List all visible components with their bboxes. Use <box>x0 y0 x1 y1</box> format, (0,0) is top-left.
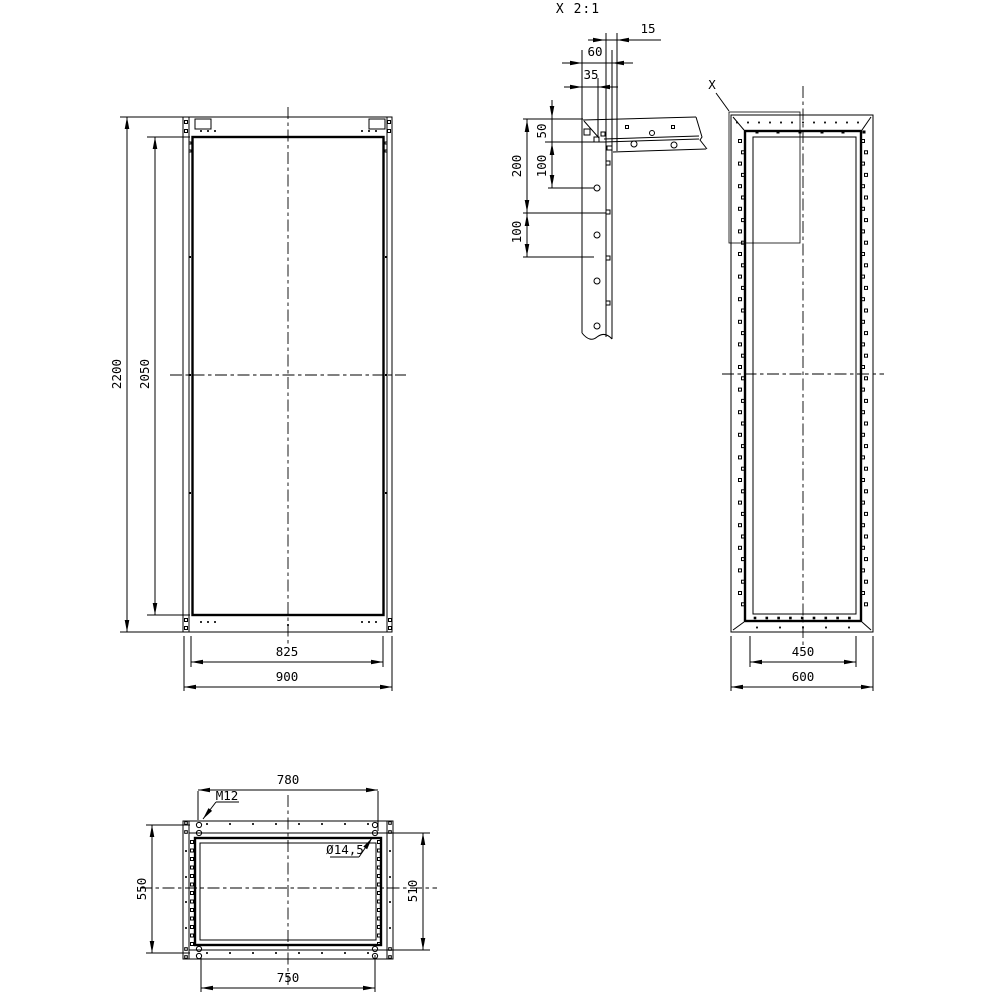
hole-mark <box>388 121 391 124</box>
hole-mark <box>389 956 392 959</box>
dim-detail-flange-lip: 15 <box>588 21 661 40</box>
hole-mark <box>862 433 865 436</box>
hole-mark <box>862 479 865 482</box>
hole-mark <box>185 901 187 903</box>
hole-mark <box>739 185 742 188</box>
detail-rail-fold-line-2 <box>604 139 699 142</box>
hole-mark <box>779 627 781 629</box>
hole-mark <box>206 823 208 825</box>
hole-mark <box>185 850 187 852</box>
hole-mark <box>191 875 194 878</box>
hole-mark <box>742 467 745 470</box>
hole-mark <box>865 151 868 154</box>
hole-mark <box>185 822 188 825</box>
hole-mark <box>865 580 868 583</box>
hole-mark <box>191 926 194 929</box>
hole-mark <box>865 535 868 538</box>
hole-mark <box>189 150 191 152</box>
hole-diameter-callout-label: Ø14,5 <box>326 842 364 857</box>
hole-mark <box>862 140 865 143</box>
hole-mark <box>862 320 865 323</box>
hole-mark <box>739 207 742 210</box>
hole-mark <box>835 122 837 124</box>
hole-mark <box>388 130 391 133</box>
hole-mark <box>848 627 850 629</box>
front-outer-frame <box>183 117 392 632</box>
hole-mark <box>200 130 202 132</box>
technical-drawing: 2200 2050 825 900 X 2:1 <box>0 0 1000 1000</box>
hole-mark <box>865 512 868 515</box>
hole-mark <box>777 131 780 134</box>
dim-text-side-width-overall: 600 <box>792 669 815 684</box>
hole-mark <box>865 286 868 289</box>
hole-mark <box>389 927 391 929</box>
hole-mark <box>191 909 194 912</box>
hole-mark <box>742 264 745 267</box>
hole-mark <box>361 130 363 132</box>
dim-front-height-inner: 2050 <box>137 137 190 615</box>
hole-mark <box>739 343 742 346</box>
hole-mark <box>742 219 745 222</box>
side-outer-frame <box>731 115 873 632</box>
front-top-right-cutout <box>369 119 385 129</box>
hole-mark <box>865 219 868 222</box>
dim-text-detail-100-lower: 100 <box>509 221 524 244</box>
hole-mark <box>275 823 277 825</box>
front-view: 2200 2050 825 900 <box>109 107 406 691</box>
hole-mark <box>739 366 742 369</box>
detail-x-callout-label: X <box>708 77 716 92</box>
hole-mark <box>207 621 209 623</box>
hole-mark <box>742 309 745 312</box>
hole-mark <box>378 892 381 895</box>
hole-mark <box>801 617 804 620</box>
hole-mark <box>191 858 194 861</box>
hole-mark <box>799 131 802 134</box>
hole-mark <box>378 917 381 920</box>
hole-mark <box>189 374 191 376</box>
hole-mark <box>191 943 194 946</box>
thread-callout-label: M12 <box>216 788 239 803</box>
side-miter-bottom-left <box>733 622 744 630</box>
hole-mark <box>739 433 742 436</box>
hole-mark <box>865 399 868 402</box>
hole-mark <box>865 603 868 606</box>
hole-mark <box>229 823 231 825</box>
hole-mark <box>739 546 742 549</box>
hole-mark <box>862 592 865 595</box>
hole-mark <box>865 264 868 267</box>
hole-mark <box>862 275 865 278</box>
hole-mark <box>791 122 793 124</box>
hole-mark <box>739 569 742 572</box>
hole-mark <box>739 162 742 165</box>
hole-mark <box>385 374 387 376</box>
hole-mark <box>344 823 346 825</box>
hole-mark <box>865 241 868 244</box>
hole-mark <box>207 130 209 132</box>
hole-mark <box>185 876 187 878</box>
hole-mark <box>802 627 804 629</box>
dim-top-pitch-left: 550 <box>134 825 190 953</box>
hole-mark <box>862 411 865 414</box>
dim-text-front-width-overall: 900 <box>276 669 299 684</box>
hole-mark <box>865 558 868 561</box>
hole-mark <box>185 627 188 630</box>
hole-mark <box>865 467 868 470</box>
hole-mark <box>191 917 194 920</box>
hole-mark <box>862 388 865 391</box>
dim-text-side-width-inner: 450 <box>792 644 815 659</box>
hole-mark <box>368 130 370 132</box>
hole-mark <box>372 946 377 951</box>
hole-mark <box>862 366 865 369</box>
hole-mark <box>252 823 254 825</box>
hole-mark <box>185 121 188 124</box>
hole-mark <box>813 617 816 620</box>
hole-mark <box>742 332 745 335</box>
hole-mark <box>742 512 745 515</box>
hole-mark <box>389 822 392 825</box>
hole-mark <box>385 256 387 258</box>
hole-mark <box>389 619 392 622</box>
hole-mark <box>865 377 868 380</box>
hole-mark <box>378 883 381 886</box>
dim-text-top-510: 510 <box>405 880 420 903</box>
hole-mark <box>191 866 194 869</box>
dim-side-width-inner: 450 <box>750 636 856 667</box>
hole-mark <box>739 320 742 323</box>
hole-mark <box>378 849 381 852</box>
hole-mark <box>739 479 742 482</box>
hole-mark <box>389 901 391 903</box>
hole-mark <box>865 422 868 425</box>
hole-mark <box>747 122 749 124</box>
hole-mark <box>862 230 865 233</box>
hole-mark <box>742 173 745 176</box>
hole-mark <box>185 831 188 834</box>
hole-mark <box>862 501 865 504</box>
dim-detail-vertical-chain: 50 100 200 100 <box>509 100 606 257</box>
hole-mark <box>862 343 865 346</box>
hole-mark <box>378 909 381 912</box>
hole-mark <box>863 131 866 134</box>
hole-mark <box>777 617 780 620</box>
hole-mark <box>200 621 202 623</box>
hole-mark <box>214 130 216 132</box>
hole-mark <box>378 934 381 937</box>
hole-mark <box>378 866 381 869</box>
hole-mark <box>196 946 201 951</box>
hole-mark <box>739 456 742 459</box>
hole-mark <box>287 624 289 626</box>
hole-mark <box>298 952 300 954</box>
hole-mark <box>189 492 191 494</box>
hole-mark <box>378 875 381 878</box>
hole-mark <box>742 445 745 448</box>
hole-mark <box>865 445 868 448</box>
dim-text-detail-200: 200 <box>509 155 524 178</box>
hole-mark <box>821 131 824 134</box>
hole-mark <box>862 253 865 256</box>
hole-mark <box>754 617 757 620</box>
detail-title: X 2:1 <box>556 2 600 17</box>
hole-mark <box>344 952 346 954</box>
hole-mark <box>862 546 865 549</box>
hole-mark <box>742 399 745 402</box>
dim-text-front-height-inner: 2050 <box>137 359 152 389</box>
hole-mark <box>865 332 868 335</box>
dim-text-top-750: 750 <box>277 970 300 985</box>
hole-mark <box>802 122 804 124</box>
hole-mark <box>191 934 194 937</box>
hole-mark <box>378 841 381 844</box>
hole-mark <box>742 580 745 583</box>
hole-mark <box>846 122 848 124</box>
hole-mark <box>739 524 742 527</box>
hole-mark <box>848 617 851 620</box>
hole-mark <box>739 140 742 143</box>
hole-mark <box>862 207 865 210</box>
hole-mark <box>769 122 771 124</box>
detail-holes <box>584 126 677 330</box>
detail-profile-break-line <box>582 333 612 339</box>
dim-detail-web-offset: 35 <box>564 67 618 137</box>
hole-mark <box>191 900 194 903</box>
hole-mark <box>191 841 194 844</box>
hole-mark <box>321 952 323 954</box>
hole-mark <box>214 621 216 623</box>
hole-mark <box>185 619 188 622</box>
hole-mark <box>206 952 208 954</box>
hole-mark <box>756 131 759 134</box>
side-miter-top-left <box>733 117 744 130</box>
hole-mark <box>842 131 845 134</box>
side-panel-frame <box>753 137 856 614</box>
hole-mark <box>191 892 194 895</box>
hole-mark <box>361 621 363 623</box>
hole-mark <box>739 501 742 504</box>
hole-mark <box>739 275 742 278</box>
hole-mark <box>742 286 745 289</box>
side-view: X 450 600 <box>708 77 884 691</box>
hole-mark <box>191 849 194 852</box>
hole-mark <box>367 952 369 954</box>
detail-rail-bottom-edge <box>613 149 706 152</box>
hole-mark <box>742 490 745 493</box>
detail-rail-fold-line-1 <box>604 136 699 139</box>
hole-mark <box>185 956 188 959</box>
hole-mark <box>789 617 792 620</box>
hole-mark <box>385 150 387 152</box>
side-miter-top-right <box>862 117 871 130</box>
callout-thread-m12: M12 <box>203 788 239 819</box>
hole-mark <box>739 388 742 391</box>
hole-mark <box>275 952 277 954</box>
hole-mark <box>862 456 865 459</box>
hole-mark <box>862 298 865 301</box>
hole-mark <box>758 122 760 124</box>
dim-text-front-height-overall: 2200 <box>109 359 124 389</box>
front-top-left-cutout <box>195 119 211 129</box>
side-hole-marks <box>736 122 867 629</box>
hole-mark <box>862 162 865 165</box>
dim-text-front-width-inner: 825 <box>276 644 299 659</box>
dim-front-width-inner: 825 <box>191 636 383 667</box>
hole-mark <box>189 256 191 258</box>
dim-text-detail-60: 60 <box>587 44 602 59</box>
hole-mark <box>780 122 782 124</box>
hole-mark <box>385 492 387 494</box>
hole-mark <box>865 354 868 357</box>
hole-mark <box>824 122 826 124</box>
hole-mark <box>389 850 391 852</box>
cad-drawing-canvas: 2200 2050 825 900 X 2:1 <box>0 0 1000 1000</box>
callout-hole-diameter: Ø14,5 <box>326 838 372 857</box>
hole-mark <box>862 524 865 527</box>
hole-mark <box>739 298 742 301</box>
hole-mark <box>375 621 377 623</box>
hole-mark <box>739 230 742 233</box>
detail-rail-break-line <box>696 117 707 149</box>
dim-text-detail-50: 50 <box>534 123 549 138</box>
hole-mark <box>742 196 745 199</box>
hole-mark <box>298 823 300 825</box>
hole-mark <box>865 309 868 312</box>
hole-mark <box>385 142 387 144</box>
hole-mark <box>252 952 254 954</box>
hole-mark <box>825 627 827 629</box>
dim-text-detail-35: 35 <box>583 67 598 82</box>
hole-mark <box>857 122 859 124</box>
hole-mark <box>756 627 758 629</box>
hole-mark <box>368 621 370 623</box>
detail-rail-top-edge <box>583 117 696 120</box>
hole-mark <box>378 926 381 929</box>
detail-view-x: X 2:1 <box>509 2 707 339</box>
hole-mark <box>229 952 231 954</box>
hole-mark <box>378 858 381 861</box>
hole-mark <box>742 422 745 425</box>
hole-mark <box>742 354 745 357</box>
hole-mark <box>742 535 745 538</box>
hole-mark <box>321 823 323 825</box>
hole-mark <box>389 876 391 878</box>
hole-mark <box>865 196 868 199</box>
dim-text-detail-15: 15 <box>640 21 655 36</box>
hole-mark <box>742 603 745 606</box>
hole-mark <box>865 173 868 176</box>
hole-mark <box>739 411 742 414</box>
top-view: 780 M12 Ø14,5 550 510 750 <box>134 772 437 992</box>
hole-mark <box>742 377 745 380</box>
dim-text-detail-100-upper: 100 <box>534 155 549 178</box>
detail-x-callout: X <box>708 77 729 111</box>
hole-mark <box>865 490 868 493</box>
hole-mark <box>372 822 377 827</box>
hole-mark <box>813 122 815 124</box>
hole-mark <box>185 927 187 929</box>
hole-mark <box>739 592 742 595</box>
hole-mark <box>185 948 188 951</box>
hole-mark <box>736 122 738 124</box>
dim-text-top-780: 780 <box>277 772 300 787</box>
hole-mark <box>742 151 745 154</box>
hole-mark <box>196 822 201 827</box>
hole-mark <box>825 617 828 620</box>
hole-mark <box>367 823 369 825</box>
hole-mark <box>185 130 188 133</box>
hole-mark <box>389 627 392 630</box>
hole-mark <box>862 569 865 572</box>
hole-mark <box>191 883 194 886</box>
side-miter-bottom-right <box>862 622 871 630</box>
dim-text-top-550: 550 <box>134 878 149 901</box>
hole-mark <box>766 617 769 620</box>
hole-mark <box>742 558 745 561</box>
hole-mark <box>862 185 865 188</box>
hole-mark <box>189 142 191 144</box>
hole-mark <box>375 130 377 132</box>
hole-mark <box>739 253 742 256</box>
hole-mark <box>836 617 839 620</box>
hole-mark <box>378 900 381 903</box>
